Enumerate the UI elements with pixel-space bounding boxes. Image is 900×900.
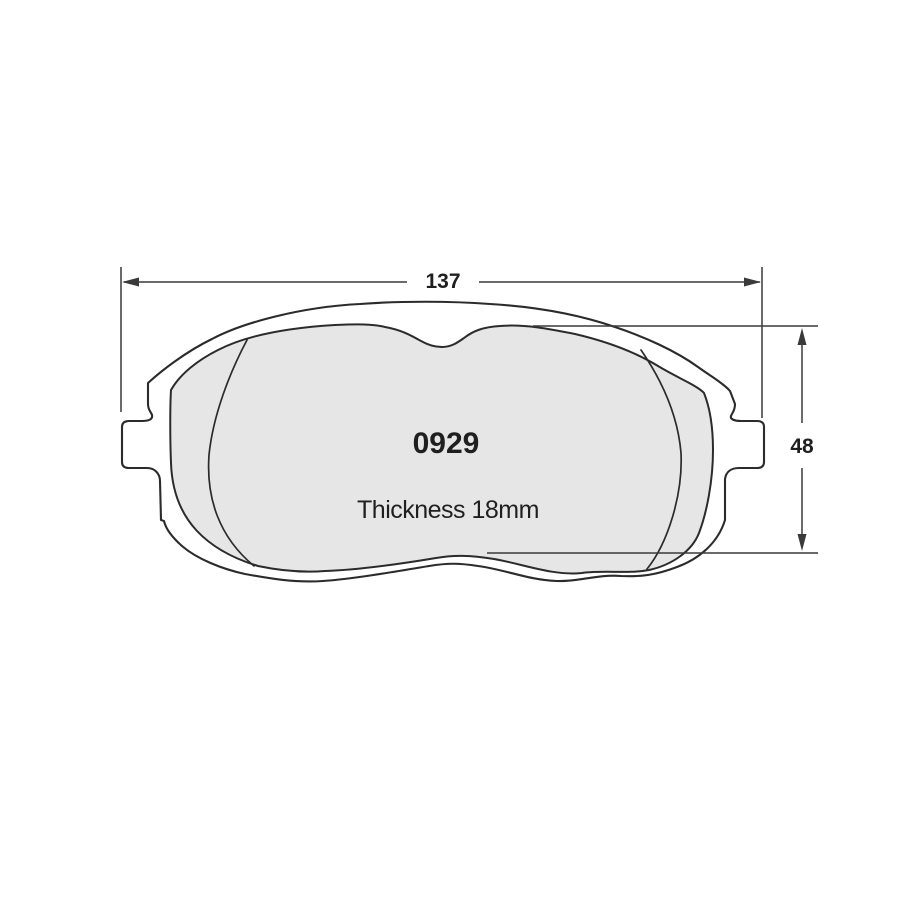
height-arrowhead-up bbox=[798, 328, 807, 345]
height-dimension-value: 48 bbox=[790, 435, 814, 458]
part-number-label: 0929 bbox=[413, 427, 480, 460]
width-arrowhead-right bbox=[744, 278, 761, 287]
technical-drawing-page: 137 48 0929 Thickness 18mm bbox=[0, 0, 900, 900]
height-arrowhead-down bbox=[798, 534, 807, 551]
thickness-label: Thickness 18mm bbox=[357, 496, 539, 524]
width-arrowhead-left bbox=[122, 278, 139, 287]
brake-pad-technical-drawing: 137 48 0929 Thickness 18mm bbox=[0, 0, 900, 900]
width-dimension-value: 137 bbox=[425, 270, 460, 293]
